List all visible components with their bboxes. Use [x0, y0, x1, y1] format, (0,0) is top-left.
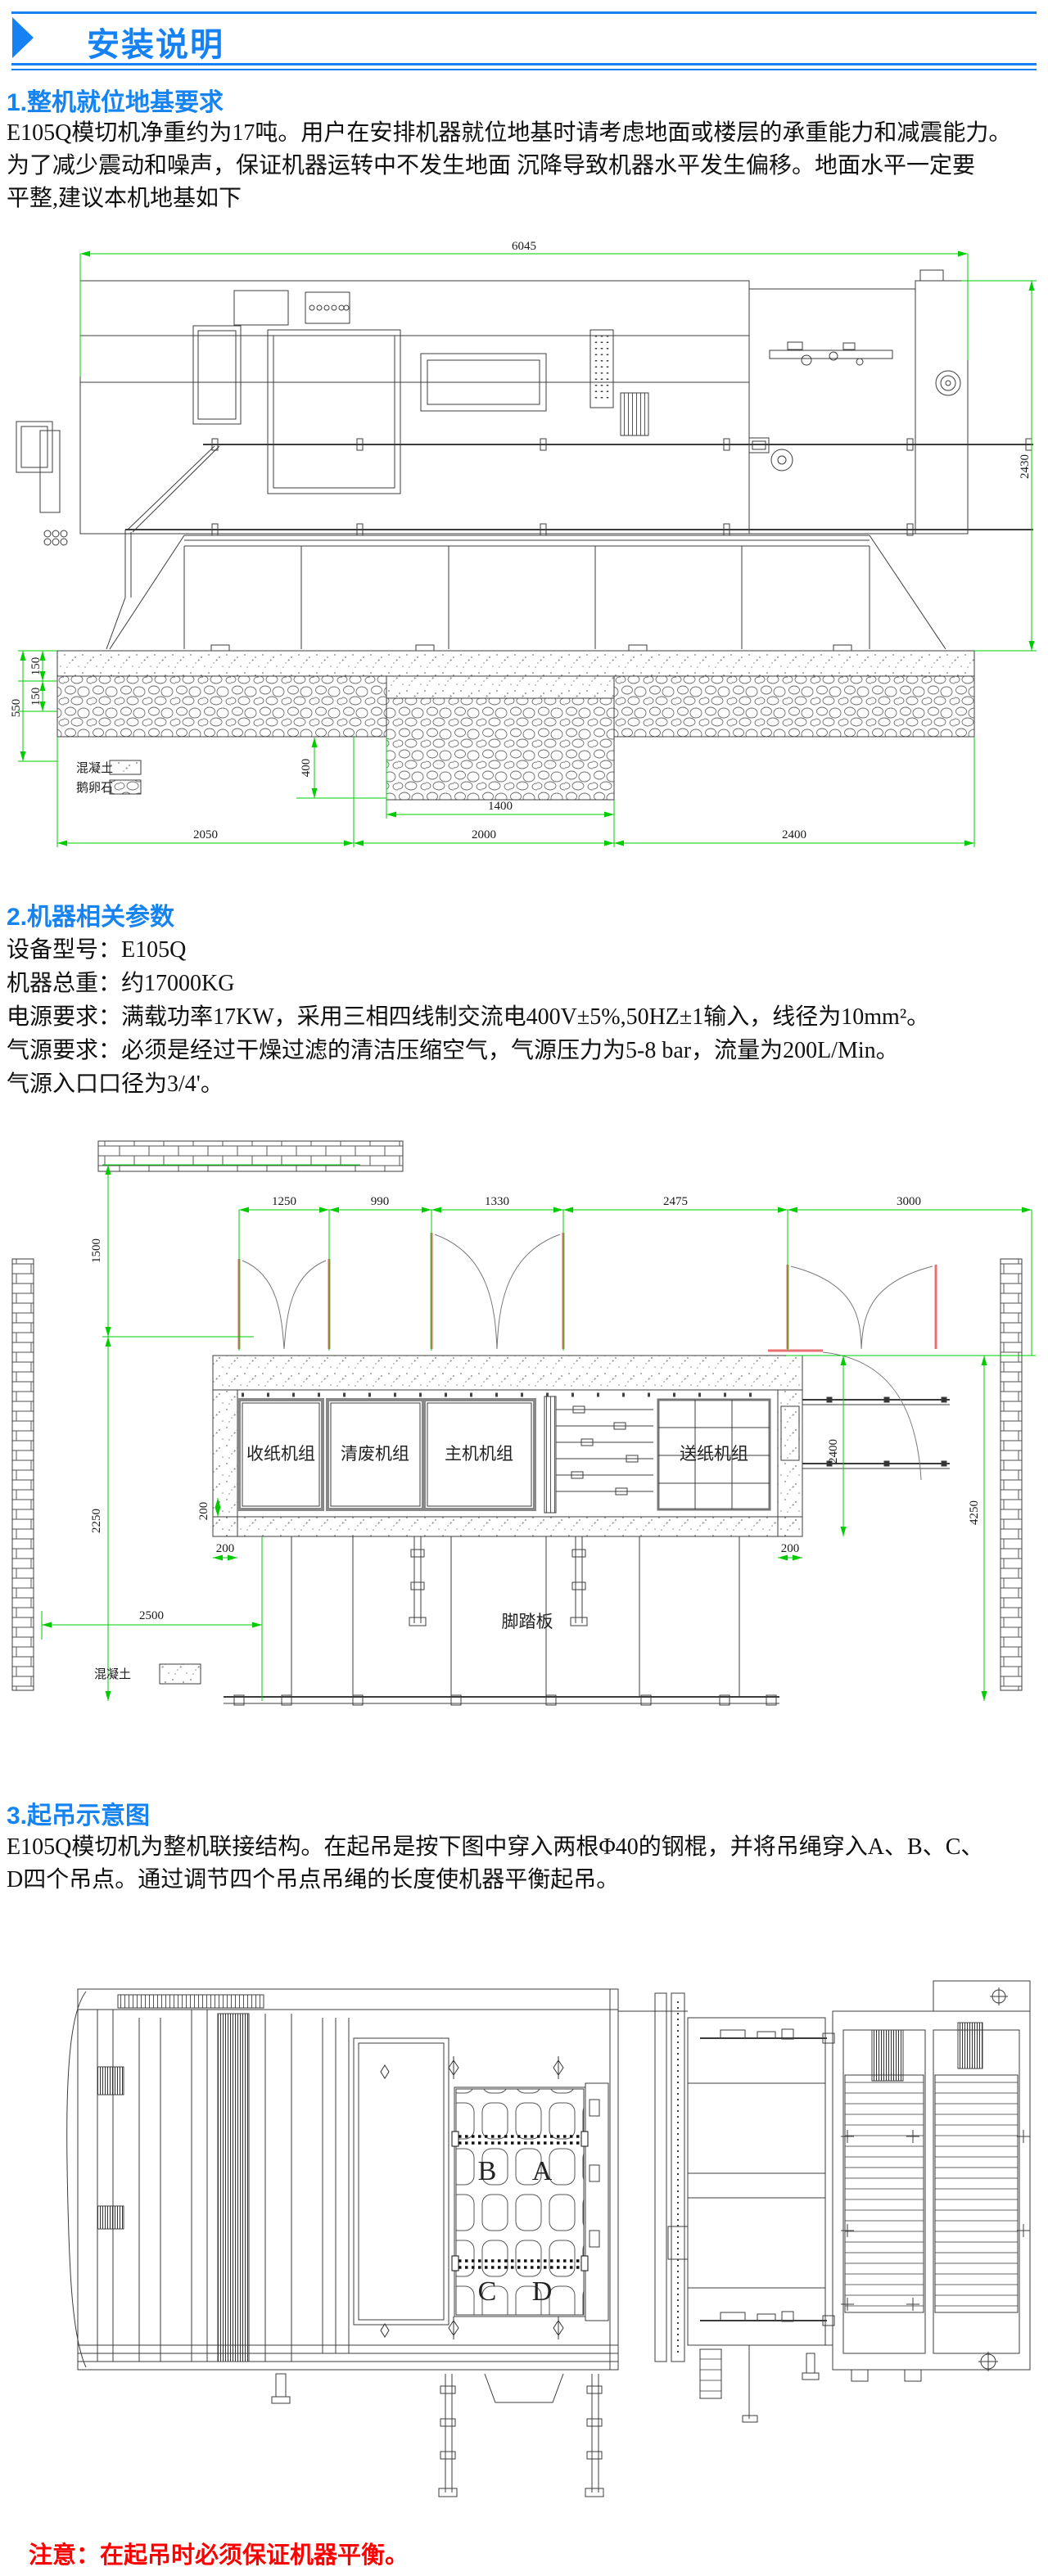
dim-1330: 1330	[485, 1195, 509, 1208]
drawing-lifting-view: B A C D	[8, 1960, 1040, 2533]
section2-title: 2.机器相关参数	[7, 896, 174, 932]
dim-2500: 2500	[139, 1609, 164, 1622]
dim-2430: 2430	[1019, 454, 1032, 479]
drawing-floor-plan: 1250 990 1330 2475 3000 1500 2250 2400 4…	[8, 1136, 1040, 1787]
section3-body: E105Q模切机为整机联接结构。在起吊是按下图中穿入两根Φ40的钢棍，并将吊绳穿…	[7, 1831, 1045, 1897]
plan-legend: 混凝土	[94, 1664, 201, 1684]
lift-point-b: B	[478, 2156, 497, 2186]
dim-3000: 3000	[897, 1195, 921, 1208]
dim-200-left-v: 200	[197, 1502, 210, 1521]
footboard-label: 脚踏板	[502, 1612, 553, 1631]
header-rule-bottom2	[11, 69, 1037, 70]
unit-stripping-label: 清废机组	[341, 1444, 409, 1464]
dim-550: 550	[10, 699, 23, 718]
dim-2250: 2250	[90, 1509, 103, 1533]
lift-point-d: D	[532, 2276, 553, 2307]
page-title: 安装说明	[87, 18, 224, 65]
header-rule-top	[11, 11, 1037, 14]
section3-title: 3.起吊示意图	[7, 1795, 150, 1831]
machine-plan	[213, 1356, 950, 1705]
dim-1500: 1500	[90, 1238, 103, 1263]
dim-150b: 150	[29, 688, 43, 706]
header-rule-bottom	[11, 63, 1037, 65]
legend-cobble-label: 鹅卵石	[76, 781, 113, 795]
dim-200-left-h: 200	[216, 1542, 235, 1555]
dim-200-right: 200	[781, 1542, 800, 1555]
dim-2050: 2050	[193, 828, 218, 841]
dim-2400: 2400	[782, 828, 806, 841]
legend-concrete-label: 混凝土	[76, 761, 113, 775]
manual-page: { "header": { "title": "安装说明" }, "sectio…	[0, 0, 1048, 2576]
lift-point-a: A	[532, 2156, 553, 2186]
section1-body: E105Q模切机净重约为17吨。用户在安排机器就位地基时请考虑地面或楼层的承重能…	[7, 117, 1045, 215]
dim-2000: 2000	[472, 828, 496, 841]
dim-4250: 4250	[968, 1500, 981, 1525]
lifting-machine-top-view	[67, 1981, 1030, 2497]
dim-1250: 1250	[272, 1195, 296, 1208]
drawing-side-elevation: 6045 2430 550 150 150 400 1400 2050 2000…	[8, 237, 1040, 880]
dim-6045: 6045	[512, 240, 536, 253]
section2-body: 设备型号：E105Q 机器总重：约17000KG 电源要求：满载功率17KW，采…	[7, 933, 1045, 1101]
dim-990: 990	[371, 1195, 390, 1208]
unit-feeder-label: 送纸机组	[680, 1444, 748, 1464]
plan-legend-concrete: 混凝土	[94, 1667, 131, 1681]
foundation-section	[57, 651, 974, 800]
section1-title: 1.整机就位地基要求	[7, 82, 224, 118]
unit-main-label: 主机机组	[445, 1444, 513, 1464]
machine-side-view	[16, 270, 1033, 651]
dim-1400: 1400	[488, 800, 513, 813]
dim-2475: 2475	[663, 1195, 688, 1208]
unit-delivery-label: 收纸机组	[246, 1444, 315, 1464]
header-arrow-icon	[12, 17, 34, 58]
lift-point-c: C	[478, 2276, 497, 2307]
dim-150a: 150	[29, 657, 43, 676]
material-legend: 混凝土 鹅卵石	[76, 760, 141, 795]
dim-2400-plan: 2400	[827, 1439, 840, 1464]
warning-note: 注意：在起吊时必须保证机器平衡。	[29, 2536, 409, 2570]
dim-400: 400	[300, 759, 313, 778]
